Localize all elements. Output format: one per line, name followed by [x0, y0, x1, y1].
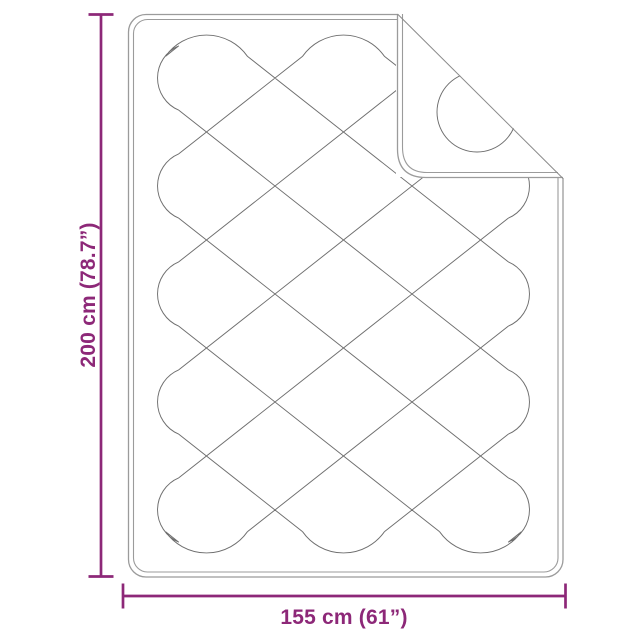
- width-label: 155 cm (61”): [280, 606, 407, 629]
- border-outer-line: [129, 15, 564, 578]
- blanket-border: [129, 15, 564, 578]
- width-dimension: [123, 584, 566, 609]
- border-inner-line: [134, 20, 559, 573]
- blanket-diagram-svg: 200 cm (78.7”) 155 cm (61”): [0, 0, 640, 640]
- height-label: 200 cm (78.7”): [77, 222, 100, 367]
- product-dimension-diagram: 200 cm (78.7”) 155 cm (61”): [0, 0, 640, 640]
- fold-flap: [397, 14, 564, 179]
